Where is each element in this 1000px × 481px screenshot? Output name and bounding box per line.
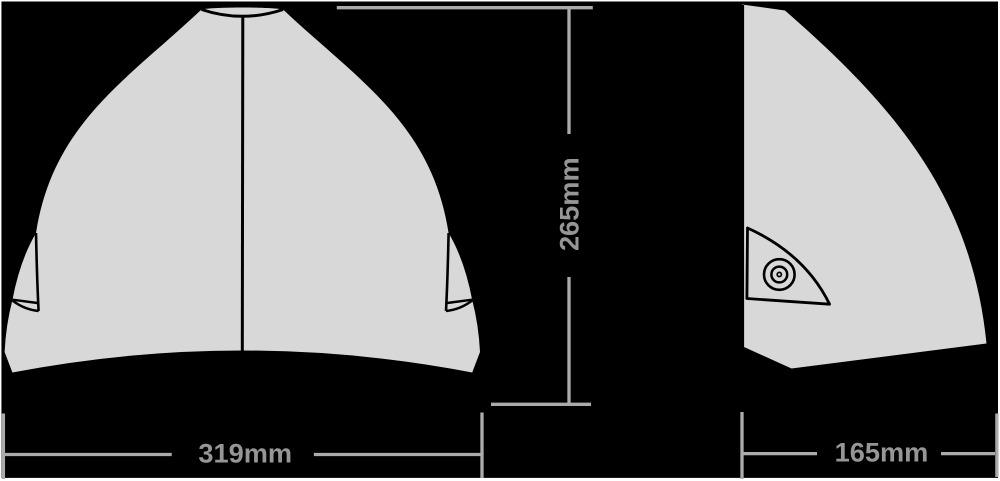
svg-text:165mm: 165mm [835, 437, 929, 468]
svg-text:265mm: 265mm [554, 157, 585, 251]
svg-text:319mm: 319mm [198, 437, 292, 468]
